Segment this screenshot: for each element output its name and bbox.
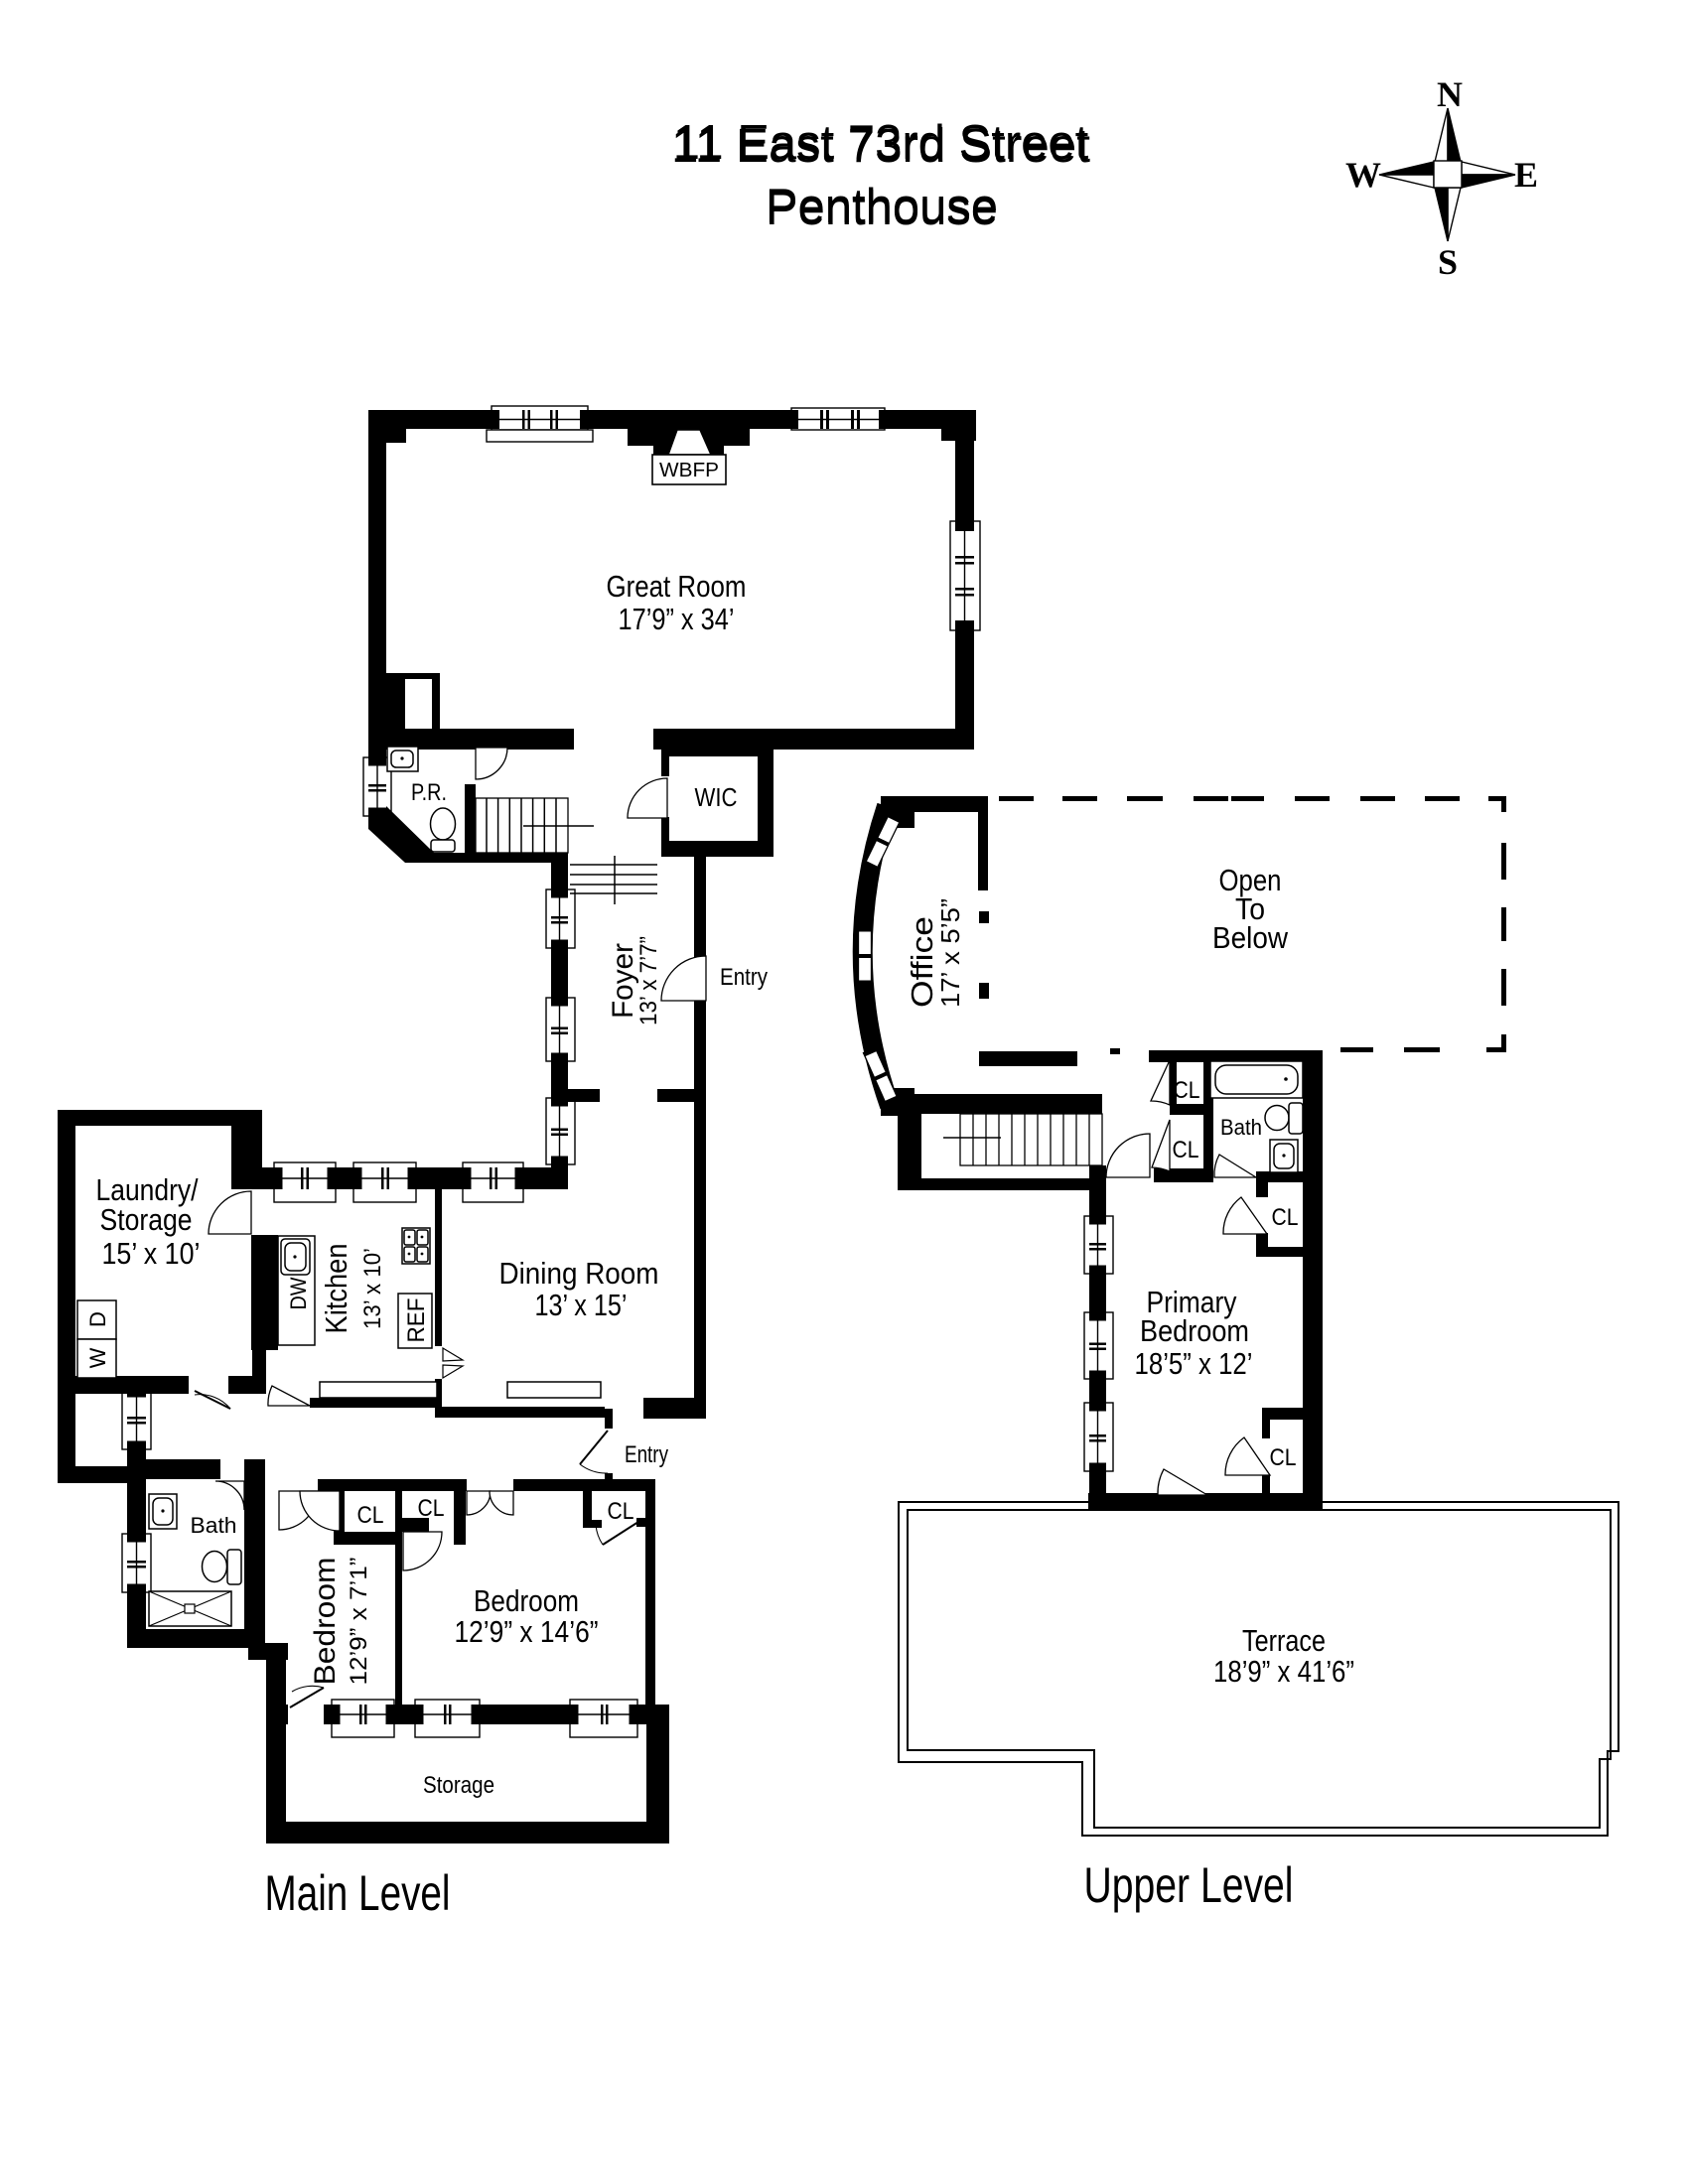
svg-text:Below: Below [1212, 920, 1289, 955]
svg-text:CL: CL [418, 1495, 445, 1522]
svg-text:Great Room: Great Room [607, 569, 747, 604]
svg-text:DW: DW [286, 1277, 311, 1309]
svg-text:Kitchen: Kitchen [319, 1244, 353, 1334]
svg-text:WIC: WIC [695, 782, 738, 812]
svg-text:17’ x 5’5”: 17’ x 5’5” [935, 898, 965, 1008]
svg-text:Upper Level: Upper Level [1084, 1857, 1294, 1913]
svg-text:E: E [1514, 155, 1538, 195]
svg-text:N: N [1437, 74, 1463, 114]
svg-text:11 East 73rd Street: 11 East 73rd Street [671, 120, 1090, 173]
svg-text:D: D [85, 1311, 110, 1327]
svg-text:S: S [1438, 242, 1458, 282]
svg-text:Bedroom: Bedroom [1140, 1313, 1249, 1348]
svg-text:Storage: Storage [423, 1772, 494, 1799]
svg-text:18’5” x 12’: 18’5” x 12’ [1135, 1346, 1253, 1381]
svg-text:Bath: Bath [1220, 1115, 1262, 1140]
svg-text:13’ x 15’: 13’ x 15’ [535, 1288, 628, 1322]
svg-text:W: W [1345, 155, 1381, 195]
svg-text:REF: REF [403, 1298, 430, 1343]
svg-text:Terrace: Terrace [1242, 1623, 1326, 1658]
svg-text:17’9” x 34’: 17’9” x 34’ [619, 602, 735, 636]
svg-text:Bath: Bath [191, 1513, 237, 1538]
svg-text:CL: CL [1173, 1137, 1199, 1163]
svg-text:12’9” x 14’6”: 12’9” x 14’6” [455, 1614, 599, 1649]
svg-text:WBFP: WBFP [659, 460, 719, 481]
svg-text:Office: Office [905, 916, 939, 1008]
svg-text:CL: CL [1270, 1444, 1297, 1471]
svg-text:Entry: Entry [625, 1441, 668, 1468]
svg-text:CL: CL [1174, 1077, 1200, 1104]
svg-text:P.R.: P.R. [411, 779, 447, 806]
svg-text:Penthouse: Penthouse [766, 183, 998, 235]
svg-text:13’ x 10’: 13’ x 10’ [359, 1248, 386, 1329]
svg-text:Storage: Storage [100, 1202, 193, 1237]
svg-text:Bedroom: Bedroom [309, 1558, 342, 1686]
svg-text:12’9” x 7’1”: 12’9” x 7’1” [346, 1558, 372, 1686]
svg-text:CL: CL [357, 1502, 384, 1529]
svg-text:Bedroom: Bedroom [474, 1583, 579, 1618]
svg-text:15’ x 10’: 15’ x 10’ [102, 1236, 201, 1271]
svg-text:Entry: Entry [720, 964, 768, 991]
svg-text:Dining Room: Dining Room [499, 1256, 659, 1291]
svg-text:Main Level: Main Level [265, 1865, 451, 1921]
svg-text:13’ x 7’7”: 13’ x 7’7” [635, 936, 662, 1025]
svg-text:W: W [85, 1347, 110, 1368]
svg-text:CL: CL [608, 1498, 634, 1525]
svg-text:18’9” x 41’6”: 18’9” x 41’6” [1213, 1654, 1354, 1689]
svg-text:CL: CL [1272, 1204, 1299, 1231]
